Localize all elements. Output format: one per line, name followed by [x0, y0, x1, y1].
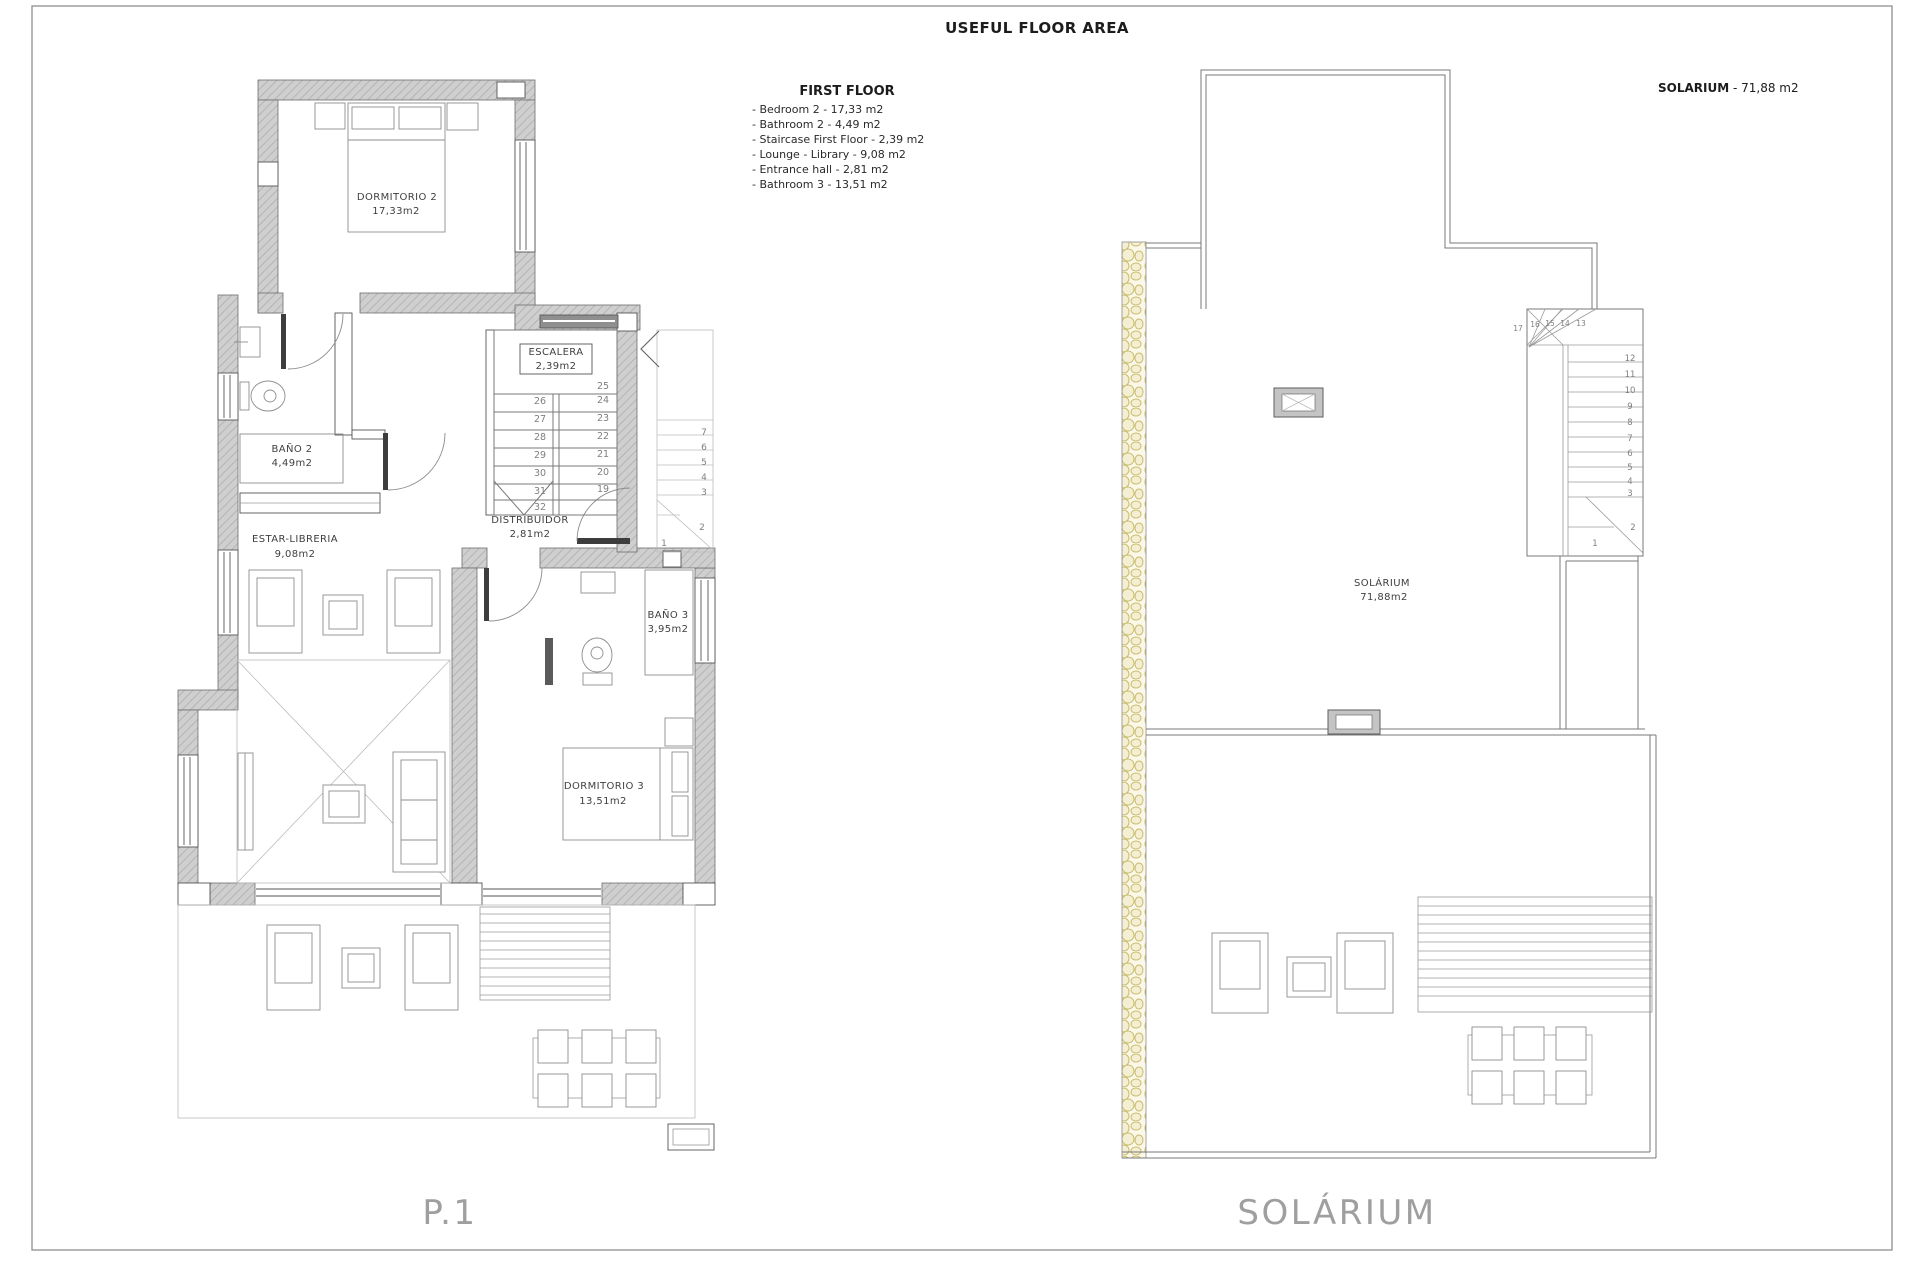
stair-step-number: 1: [1592, 539, 1597, 549]
stair-step-number: 16: [1530, 320, 1540, 329]
right-plan: 1716151413121110987654321: [1122, 70, 1656, 1233]
plan-caption-solarium: SOLÁRIUM: [1237, 1192, 1436, 1233]
room-label-dormitorio2: DORMITORIO 2: [357, 192, 437, 203]
stair-step-number: 17: [1513, 324, 1523, 333]
stair-step-number: 4: [701, 473, 707, 483]
stair-step-number: 21: [597, 449, 609, 460]
door-leaf: [281, 314, 286, 369]
stair-step-number: 8: [1627, 418, 1632, 428]
stair-step-number: 7: [701, 428, 707, 438]
right-plan-labels: SOLÁRIUM 71,88m2 SOLÁRIUM: [1237, 576, 1436, 1233]
bed: [563, 748, 693, 840]
shower-tray: [645, 570, 693, 675]
door-leaf: [577, 538, 630, 544]
header: USEFUL FLOOR AREA FIRST FLOOR - Bedroom …: [752, 19, 1799, 191]
left-plan: 26272829303132252423222120197654321: [178, 80, 715, 1233]
room-label-distribuidor: DISTRIBUIDOR: [491, 515, 568, 526]
stair-step-number: 11: [1625, 370, 1636, 380]
dining-chairs: [1472, 1027, 1586, 1104]
legend-item: - Staircase First Floor - 2,39 m2: [752, 133, 924, 146]
legend-item: - Entrance hall - 2,81 m2: [752, 163, 889, 176]
stair-step-number: 29: [534, 450, 546, 461]
stair-step-number: 14: [1560, 319, 1570, 328]
stair-step-number: 5: [1627, 463, 1632, 473]
stair-step-number: 15: [1545, 319, 1555, 328]
stair-step-number: 25: [597, 381, 609, 392]
room-label-estar: ESTAR-LIBRERIA: [252, 534, 338, 545]
ghost-staircase: [641, 330, 713, 552]
stair-step-number: 20: [597, 467, 609, 478]
legend-title: FIRST FLOOR: [799, 84, 894, 99]
stair-step-number: 28: [534, 432, 546, 443]
right-plan-staircase: 1716151413121110987654321: [1513, 309, 1643, 556]
solarium-header: SOLARIUM - 71,88 m2: [1658, 81, 1799, 95]
right-plan-terrace: [1212, 897, 1652, 1104]
room-label-bano3: BAÑO 3: [648, 608, 689, 621]
toilet: [251, 381, 285, 411]
floor-plan-sheet: USEFUL FLOOR AREA FIRST FLOOR - Bedroom …: [0, 0, 1920, 1280]
stair-step-number: 2: [699, 523, 705, 533]
legend-item: - Bedroom 2 - 17,33 m2: [752, 103, 883, 116]
stair-step-number: 27: [534, 414, 546, 425]
stair-step-number: 13: [1576, 319, 1586, 328]
stair-step-number: 32: [534, 502, 546, 513]
sheet-border: [32, 6, 1892, 1250]
stair-step-number: 3: [1627, 489, 1632, 499]
stair-step-number: 30: [534, 468, 546, 479]
room-area-bano3: 3,95m2: [648, 624, 689, 635]
deck: [1418, 897, 1652, 1012]
stair-step-number: 26: [534, 396, 546, 407]
room-area-estar: 9,08m2: [275, 549, 316, 560]
room-label-escalera: ESCALERA: [529, 347, 584, 358]
dining-chairs: [538, 1030, 656, 1107]
room-label-dormitorio3: DORMITORIO 3: [564, 781, 644, 792]
legend-item: - Bathroom 3 - 13,51 m2: [752, 178, 888, 191]
right-plan-outline: [1122, 70, 1656, 1158]
room-label-solarium: SOLÁRIUM: [1354, 576, 1410, 589]
pebble-wall-band: [1122, 242, 1146, 1158]
toilet: [582, 638, 612, 672]
stair-step-number: 10: [1625, 386, 1636, 396]
door-leaf: [484, 568, 489, 621]
skylight: [1274, 388, 1323, 417]
stair-step-number: 22: [597, 431, 609, 442]
stair-step-number: 3: [701, 488, 707, 498]
legend-item: - Bathroom 2 - 4,49 m2: [752, 118, 881, 131]
room-area-solarium: 71,88m2: [1360, 592, 1408, 603]
toilet-tank: [240, 382, 249, 410]
sink: [581, 572, 615, 593]
solarium-header-title: SOLARIUM: [1658, 81, 1729, 95]
stair-step-number: 6: [1627, 449, 1632, 459]
toilet-tank: [583, 673, 612, 685]
room-label-bano2: BAÑO 2: [272, 442, 313, 455]
plan-caption-p1: P.1: [422, 1193, 477, 1233]
stair-step-number: 1: [661, 539, 667, 549]
stair-step-number: 12: [1625, 354, 1636, 364]
radiator: [545, 638, 553, 685]
stair-direction-arrow-icon: [641, 331, 659, 367]
nightstand: [665, 718, 693, 746]
legend-item: - Lounge - Library - 9,08 m2: [752, 148, 906, 161]
stair-step-number: 4: [1627, 477, 1632, 487]
room-area-dormitorio2: 17,33m2: [372, 206, 420, 217]
nightstand: [315, 103, 345, 129]
room-area-dormitorio3: 13,51m2: [579, 796, 627, 807]
skylight: [1328, 710, 1380, 734]
stair-step-number: 24: [597, 395, 609, 406]
stair-step-number: 9: [1627, 402, 1632, 412]
door-leaf: [383, 433, 388, 490]
stair-step-number: 2: [1630, 523, 1635, 533]
stair-step-number: 7: [1627, 434, 1632, 444]
page-title: USEFUL FLOOR AREA: [945, 19, 1129, 37]
room-area-escalera: 2,39m2: [536, 361, 577, 372]
room-area-bano2: 4,49m2: [272, 458, 313, 469]
stair-step-number: 31: [534, 486, 546, 497]
stair-step-number: 6: [701, 443, 707, 453]
left-plan-terrace: [178, 905, 714, 1150]
stair-step-number: 23: [597, 413, 609, 424]
room-area-distribuidor: 2,81m2: [510, 529, 551, 540]
legend: - Bedroom 2 - 17,33 m2 - Bathroom 2 - 4,…: [752, 103, 924, 191]
stair-step-number: 19: [597, 484, 609, 495]
solarium-header-area: - 71,88 m2: [1729, 81, 1798, 95]
bookshelf: [238, 753, 253, 850]
nightstand: [447, 103, 478, 130]
stair-step-number: 5: [701, 458, 707, 468]
